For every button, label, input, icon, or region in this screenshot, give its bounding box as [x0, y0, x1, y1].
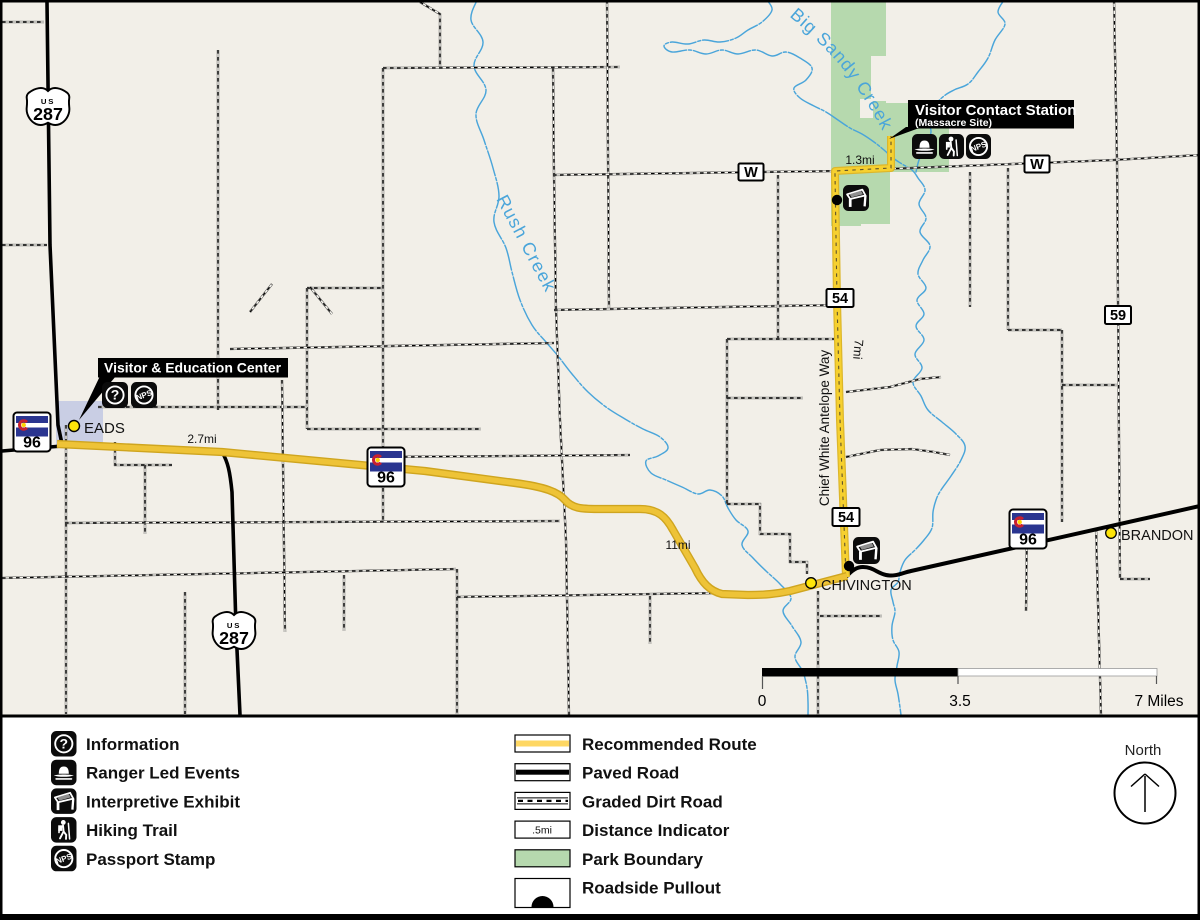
svg-text:Park Boundary: Park Boundary	[582, 850, 703, 869]
svg-text:Paved Road: Paved Road	[582, 764, 679, 783]
svg-text:Visitor & Education Center: Visitor & Education Center	[104, 360, 282, 376]
svg-text:Recommended Route: Recommended Route	[582, 735, 757, 754]
svg-text:1.3mi: 1.3mi	[845, 153, 874, 167]
svg-text:EADS: EADS	[84, 420, 125, 437]
svg-text:Graded Dirt Road: Graded Dirt Road	[582, 792, 723, 811]
svg-text:11mi: 11mi	[665, 538, 690, 552]
svg-text:287: 287	[33, 104, 63, 124]
svg-text:96: 96	[1019, 532, 1037, 549]
svg-text:3.5: 3.5	[949, 693, 971, 710]
svg-text:?: ?	[111, 387, 120, 403]
svg-text:7 Miles: 7 Miles	[1134, 693, 1183, 710]
svg-text:W: W	[1030, 157, 1044, 173]
svg-text:96: 96	[23, 435, 41, 452]
svg-text:54: 54	[832, 291, 848, 307]
svg-text:96: 96	[377, 470, 395, 487]
svg-text:(Massacre Site): (Massacre Site)	[915, 117, 992, 129]
svg-text:7mi: 7mi	[850, 339, 866, 360]
svg-text:Distance Indicator: Distance Indicator	[582, 821, 730, 840]
svg-text:Passport Stamp: Passport Stamp	[86, 850, 215, 869]
svg-text:59: 59	[1110, 308, 1126, 324]
svg-text:BRANDON: BRANDON	[1121, 528, 1194, 544]
svg-text:Roadside Pullout: Roadside Pullout	[582, 879, 721, 898]
svg-text:0: 0	[758, 693, 767, 710]
svg-text:Information: Information	[86, 735, 180, 754]
svg-text:Hiking Trail: Hiking Trail	[86, 821, 178, 840]
svg-text:CHIVINGTON: CHIVINGTON	[821, 578, 912, 594]
svg-text:.5mi: .5mi	[532, 825, 552, 837]
svg-text:W: W	[744, 165, 758, 181]
svg-text:Chief White Antelope Way: Chief White Antelope Way	[817, 350, 832, 507]
svg-text:Interpretive Exhibit: Interpretive Exhibit	[86, 792, 240, 811]
svg-text:Ranger Led Events: Ranger Led Events	[86, 764, 240, 783]
svg-text:?: ?	[60, 735, 69, 751]
svg-text:54: 54	[838, 510, 854, 526]
svg-text:287: 287	[219, 628, 249, 648]
svg-text:2.7mi: 2.7mi	[187, 432, 216, 446]
svg-text:North: North	[1125, 742, 1162, 759]
